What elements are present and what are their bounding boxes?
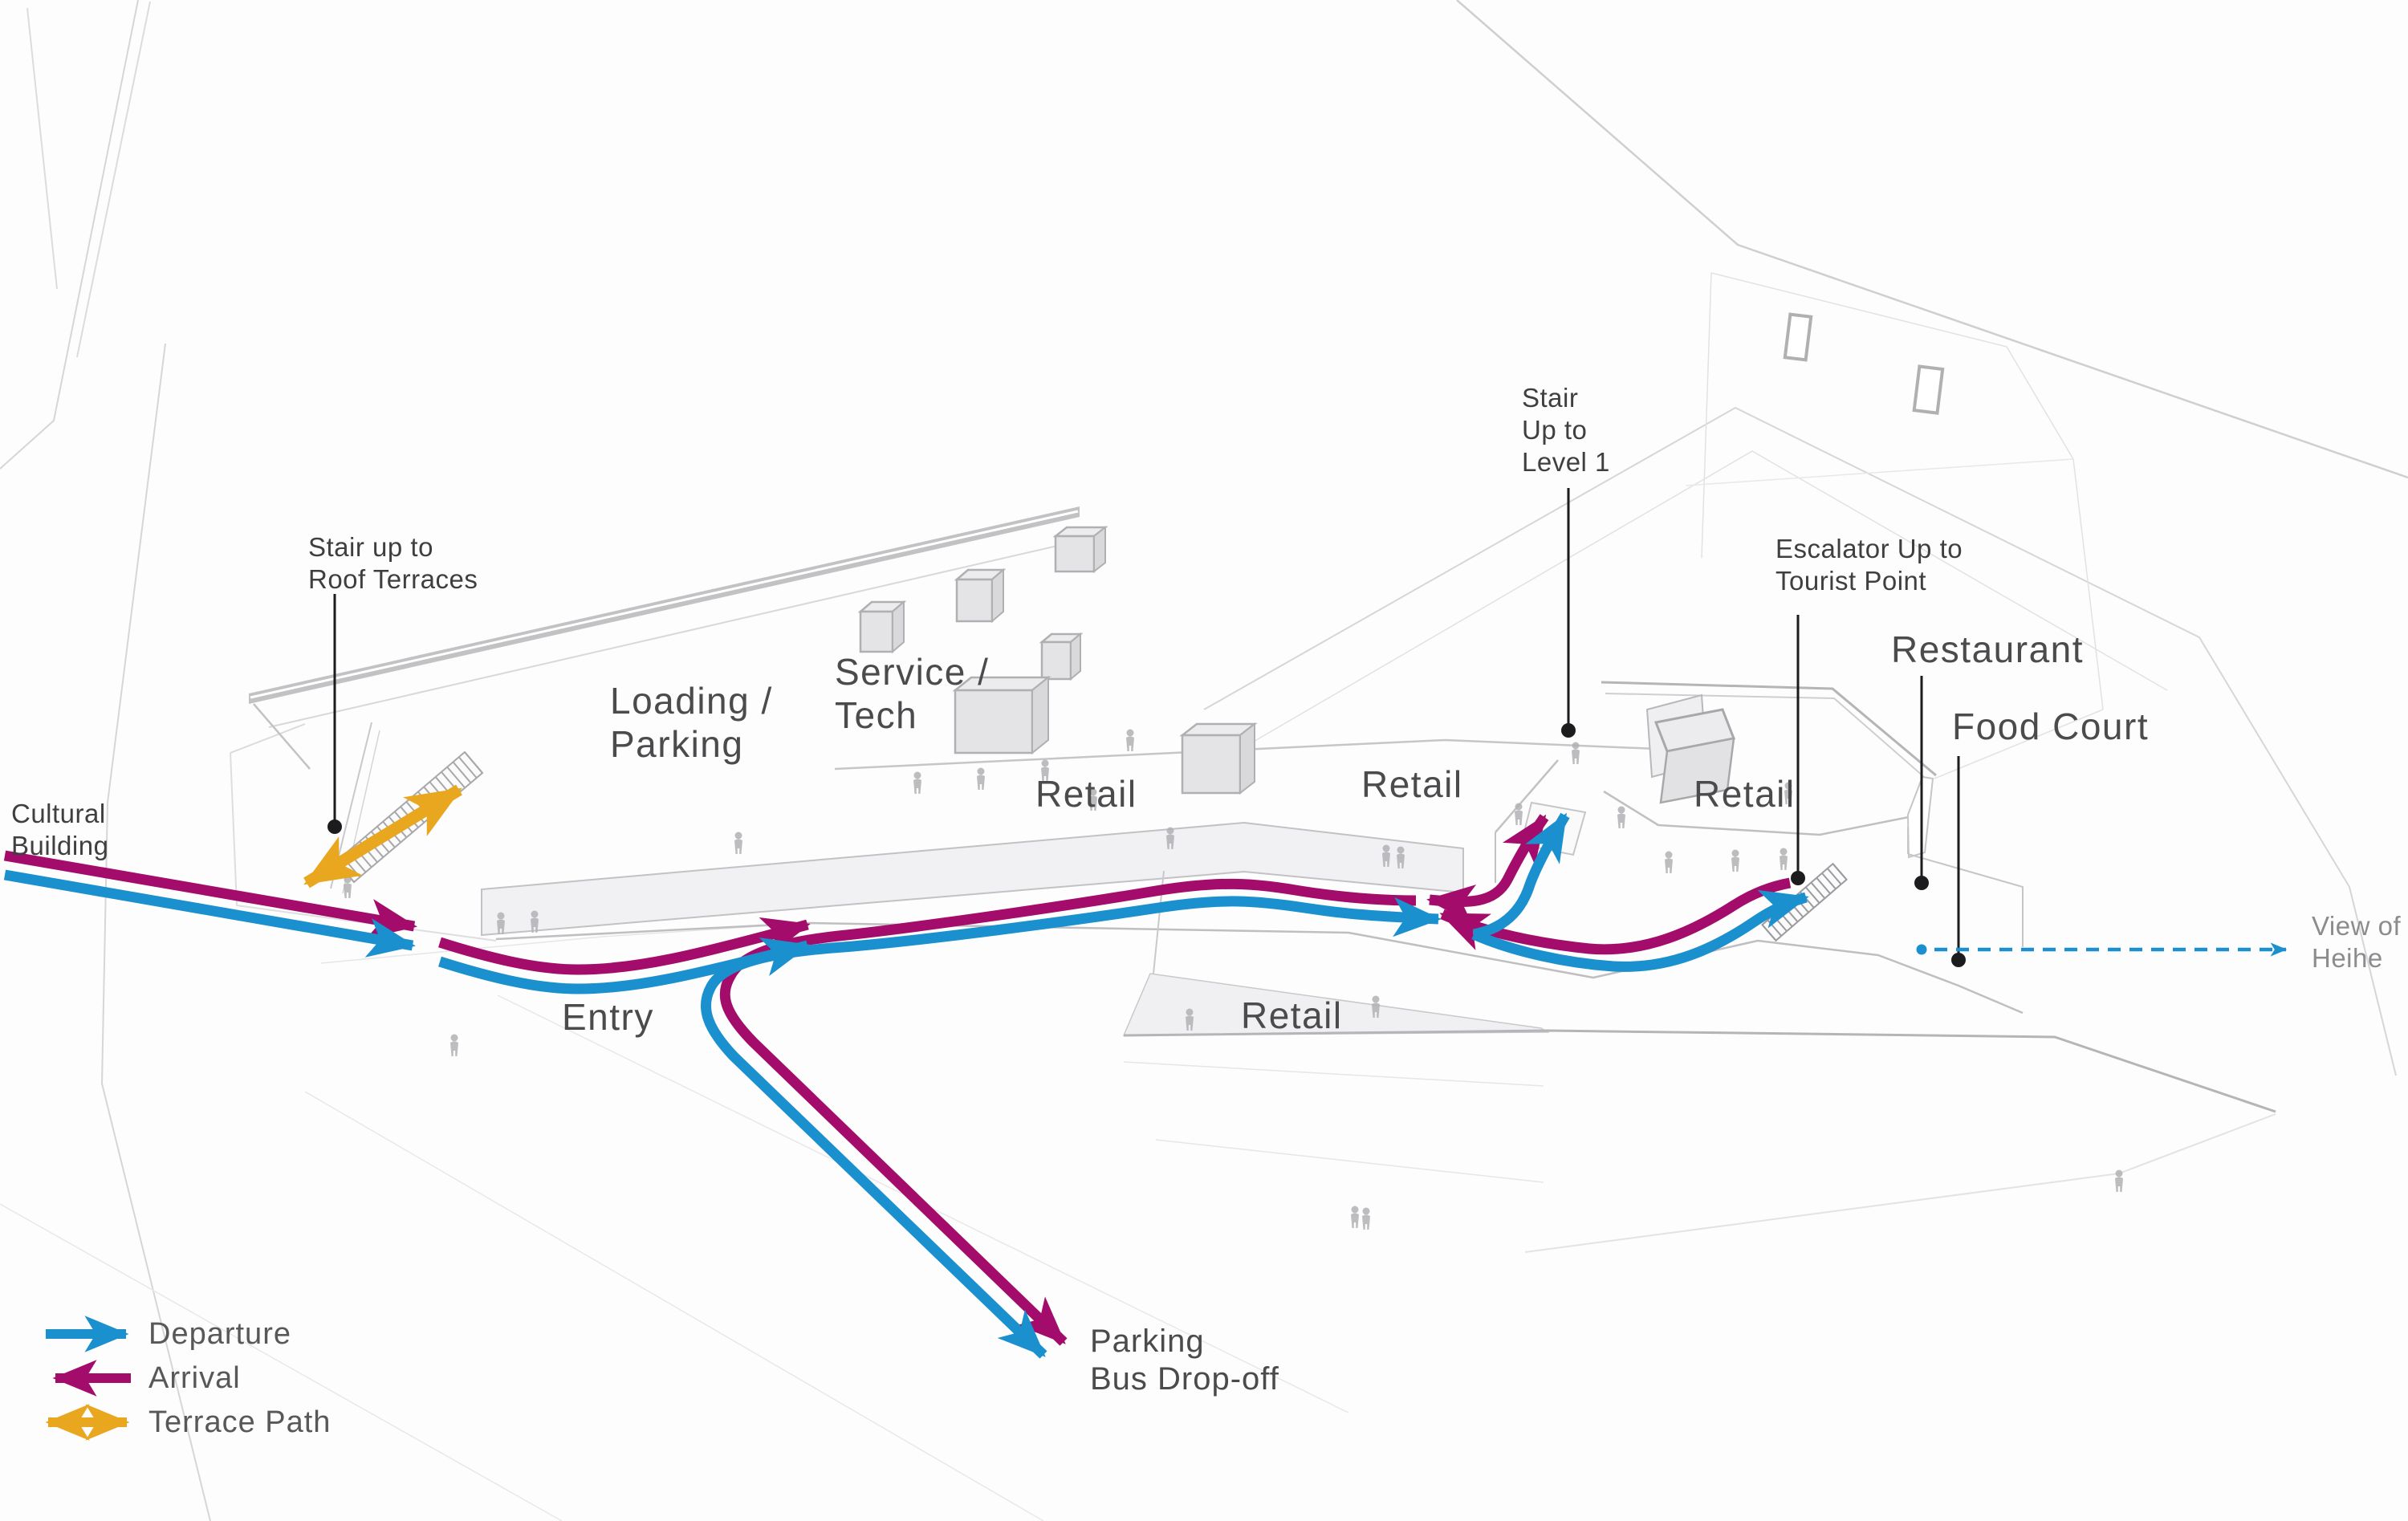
circulation-diagram: Cultural Building Stair up to Roof Terra… bbox=[0, 0, 2408, 1521]
zone-retail-3: Retail bbox=[1694, 772, 1796, 815]
stair-roof-terraces-label: Stair up to Roof Terraces bbox=[308, 531, 478, 596]
rooftop-box bbox=[860, 602, 904, 652]
legend-item-terrace-path: Terrace Path bbox=[148, 1405, 331, 1440]
legend-arrows bbox=[46, 1334, 131, 1422]
person-icon bbox=[450, 1035, 458, 1057]
rooftop-box bbox=[1042, 634, 1080, 679]
person-icon bbox=[2115, 1170, 2123, 1193]
person-icon bbox=[1362, 1208, 1370, 1230]
rooftop-box bbox=[1056, 527, 1105, 571]
roof-vents bbox=[1785, 315, 1942, 413]
person-icon bbox=[1126, 730, 1134, 752]
leader-dot bbox=[1951, 953, 1966, 967]
person-icon bbox=[1780, 848, 1788, 871]
view-line-start-dot bbox=[1917, 945, 1927, 955]
person-icon bbox=[1617, 807, 1625, 829]
parking-bus-dropoff-label: Parking Bus Drop-off bbox=[1090, 1323, 1279, 1398]
person-icon bbox=[1731, 850, 1739, 872]
person-icon bbox=[1665, 852, 1673, 874]
escalator-label: Escalator Up to Tourist Point bbox=[1775, 533, 1963, 597]
person-icon bbox=[1351, 1206, 1359, 1229]
zone-food-court: Food Court bbox=[1952, 705, 2149, 748]
leader-dot bbox=[327, 819, 342, 834]
leader-dot bbox=[1791, 871, 1805, 885]
person-icon bbox=[913, 772, 921, 795]
person-icon bbox=[977, 768, 985, 791]
zone-restaurant: Restaurant bbox=[1891, 628, 2084, 671]
terrace-path-arrow bbox=[307, 790, 459, 883]
rooftop-box bbox=[1182, 724, 1255, 793]
zone-retail-4: Retail bbox=[1241, 994, 1343, 1037]
person-icon bbox=[1572, 742, 1580, 765]
zone-entry: Entry bbox=[562, 995, 654, 1039]
cultural-building-label: Cultural Building bbox=[11, 798, 108, 862]
departure-path-stair-branch bbox=[1474, 815, 1565, 934]
leader-dot bbox=[1914, 876, 1929, 890]
person-icon bbox=[734, 832, 742, 855]
person-icon bbox=[344, 876, 352, 899]
rooftop-box bbox=[957, 570, 1003, 621]
person-icon bbox=[1515, 803, 1523, 826]
legend-item-departure: Departure bbox=[148, 1316, 291, 1352]
zone-loading-parking: Loading / Parking bbox=[610, 679, 773, 766]
zone-service-tech: Service / Tech bbox=[835, 650, 989, 737]
leader-dot bbox=[1561, 723, 1576, 738]
legend-item-arrival: Arrival bbox=[148, 1360, 241, 1396]
zone-retail-1: Retail bbox=[1035, 772, 1137, 815]
stair-level1-label: Stair Up to Level 1 bbox=[1522, 382, 1610, 478]
view-of-heihe-label: View of Heihe bbox=[2312, 910, 2401, 974]
departure-path-parking-corridor bbox=[706, 901, 1438, 1355]
zone-retail-2: Retail bbox=[1361, 763, 1463, 806]
site-plan-drawing bbox=[0, 0, 2408, 1521]
